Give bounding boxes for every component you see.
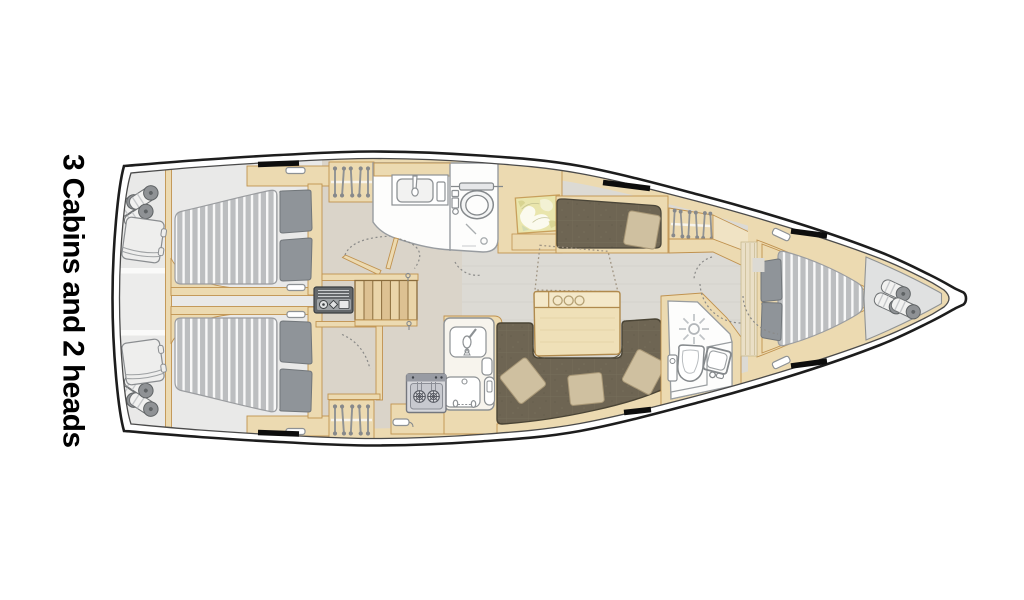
svg-text:3 Cabins and 2 heads: 3 Cabins and 2 heads: [57, 154, 90, 448]
